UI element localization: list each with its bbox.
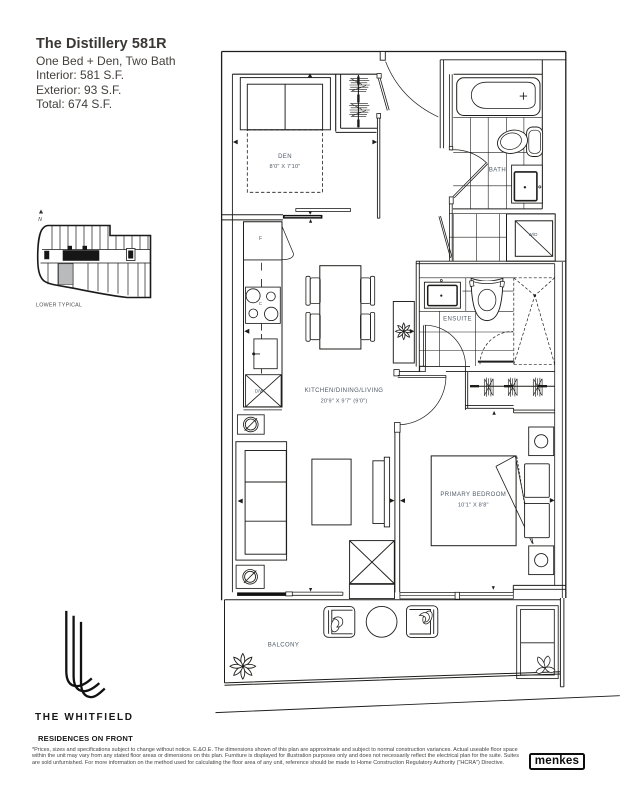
svg-text:8'0" X 7'10": 8'0" X 7'10": [270, 164, 301, 170]
svg-text:KITCHEN/DINING/LIVING: KITCHEN/DINING/LIVING: [305, 388, 384, 394]
svg-text:W/D: W/D: [529, 232, 539, 237]
svg-text:BATH: BATH: [489, 168, 506, 174]
svg-text:PRIMARY BEDROOM: PRIMARY BEDROOM: [440, 492, 506, 498]
svg-text:F: F: [259, 236, 262, 242]
svg-text:ENSUITE: ENSUITE: [443, 316, 472, 322]
svg-text:LOWER TYPICAL: LOWER TYPICAL: [36, 303, 82, 309]
svg-text:D/W: D/W: [255, 389, 265, 394]
svg-text:C: C: [259, 301, 263, 306]
svg-text:BALCONY: BALCONY: [268, 643, 299, 649]
svg-text:DEN: DEN: [278, 154, 292, 160]
svg-text:20'9" X 9'7" (9'0"): 20'9" X 9'7" (9'0"): [321, 399, 368, 405]
svg-text:N: N: [38, 217, 42, 223]
svg-text:10'1" X 8'8": 10'1" X 8'8": [458, 503, 489, 509]
